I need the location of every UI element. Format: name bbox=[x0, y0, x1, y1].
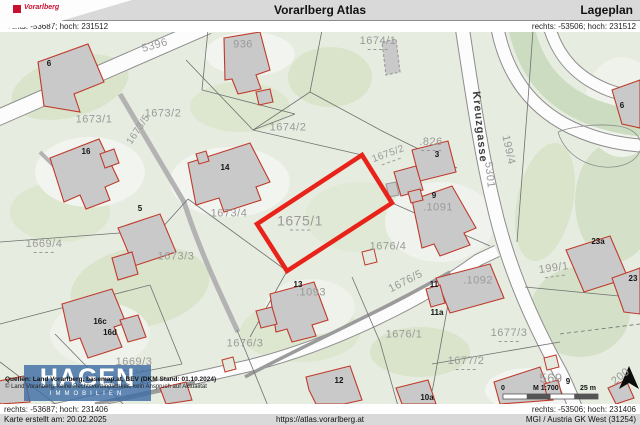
coord-bottom-right: rechts: -53506; hoch: 231406 bbox=[532, 405, 636, 414]
sources-line1: Quellen: Land Vorarlberg, basemap.at, BE… bbox=[5, 376, 216, 384]
page-type-label: Lageplan bbox=[580, 3, 633, 17]
scale-distance-label: 25 m bbox=[580, 385, 596, 392]
scale-zero-label: 0 bbox=[501, 385, 505, 392]
crs-label: MGI / Austria GK West (31254) bbox=[526, 415, 636, 424]
map-canvas[interactable]: 53969361674/11673/11673/51673/21674/2Kre… bbox=[0, 32, 640, 404]
scale-ratio-label: M 1:700 bbox=[533, 385, 559, 392]
map-sources: Quellen: Land Vorarlberg, basemap.at, BE… bbox=[5, 376, 216, 391]
map-image bbox=[0, 32, 640, 404]
footer-bar: Karte erstellt am: 20.02.2025 https://at… bbox=[0, 414, 640, 425]
sources-line2: © Land Vorarlberg; keine Rechtsverbindli… bbox=[5, 384, 216, 391]
vorarlberg-logo-text: Vorarlberg bbox=[24, 4, 59, 11]
vorarlberg-atlas-print-page: Vorarlberg Atlas Lageplan Vorarlberg rec… bbox=[0, 0, 640, 425]
coord-top-right: rechts: -53506; hoch: 231512 bbox=[532, 22, 636, 31]
vorarlberg-logo-icon bbox=[13, 5, 21, 13]
scale-bar bbox=[503, 394, 598, 399]
coord-bottom-left: rechts: -53687; hoch: 231406 bbox=[4, 405, 108, 414]
